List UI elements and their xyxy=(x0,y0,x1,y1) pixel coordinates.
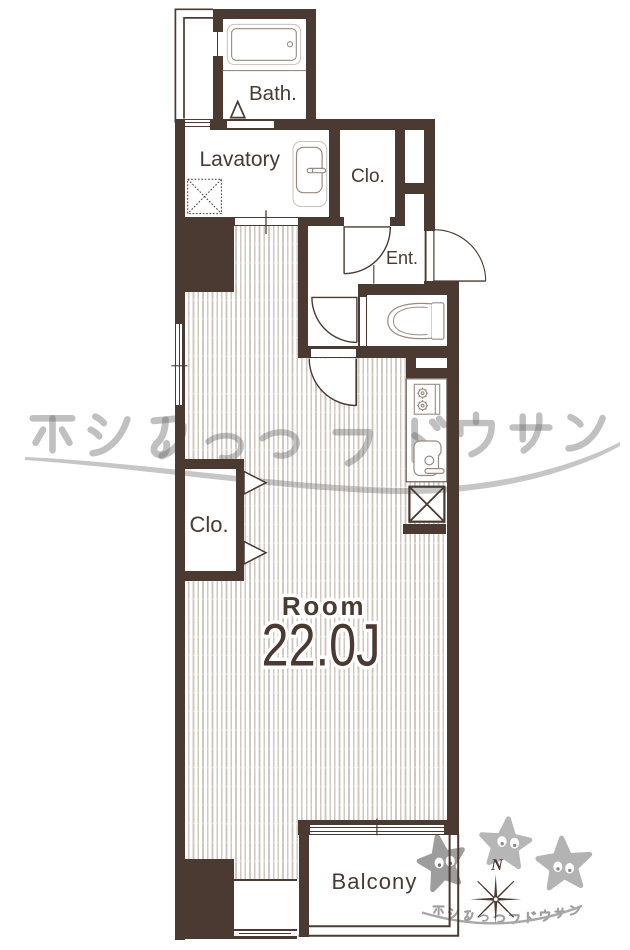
svg-text:N: N xyxy=(490,855,504,874)
svg-text:22.0J: 22.0J xyxy=(262,611,381,678)
